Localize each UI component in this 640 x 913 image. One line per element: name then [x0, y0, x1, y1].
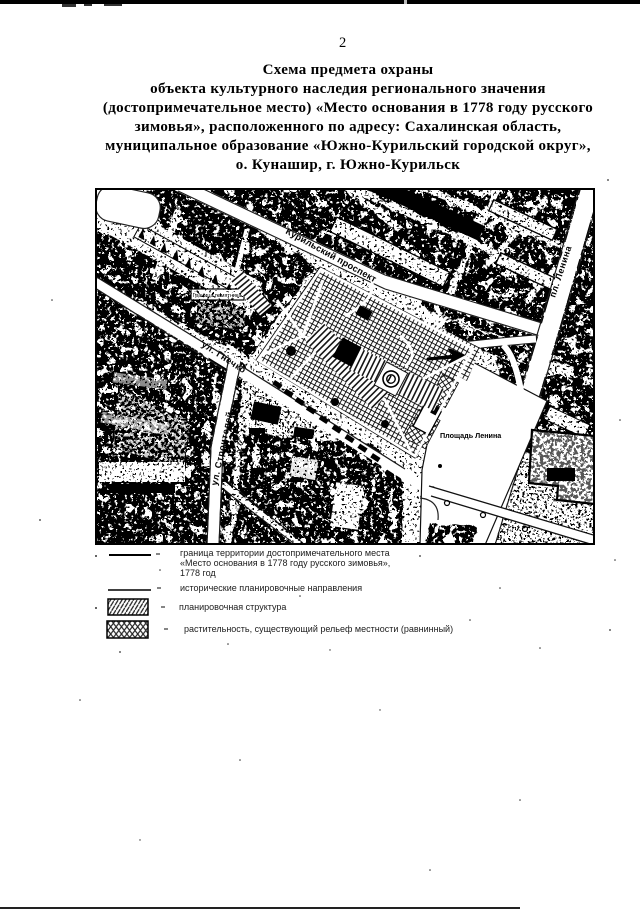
svg-text:Площадь Ленина: Площадь Ленина — [440, 431, 502, 440]
